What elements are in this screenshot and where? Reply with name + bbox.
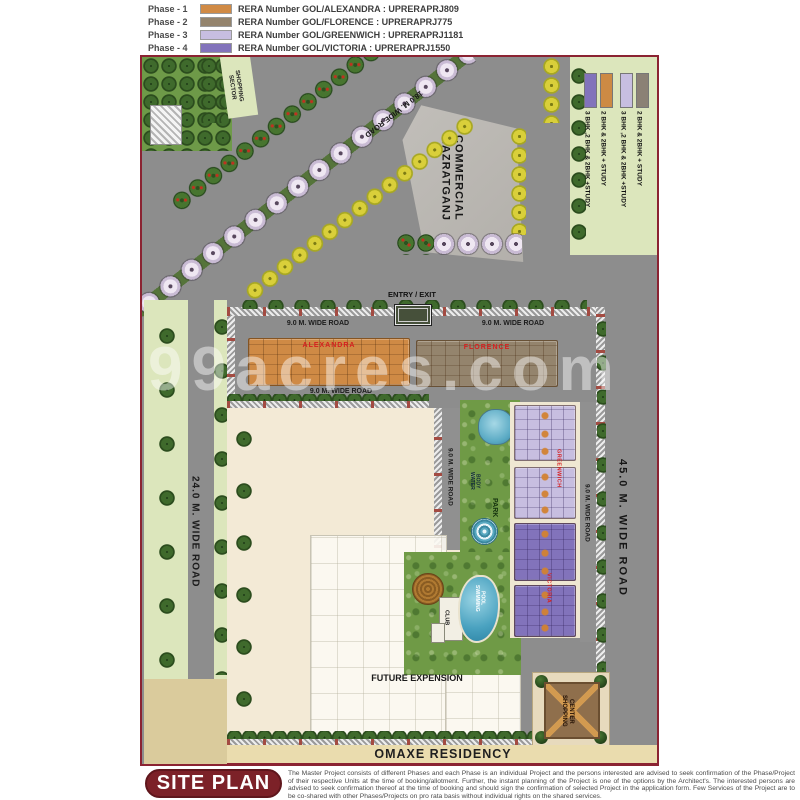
tree-row — [214, 305, 227, 675]
phase-color-swatch — [200, 4, 232, 14]
paved-plaza — [150, 105, 182, 145]
shopping-center-label: SHOPPING CENTER — [560, 687, 582, 735]
alexandra-label: ALEXANDRA — [249, 342, 409, 349]
project-name-strip: OMAXE RESIDENCY — [227, 745, 659, 766]
unit-legend-label: 2 BHK & 2BHK + STUDY — [635, 111, 647, 253]
project-name: OMAXE RESIDENCY — [227, 745, 659, 763]
site-plan-page: Phase - 1 RERA Number GOL/ALEXANDRA : UP… — [0, 0, 800, 800]
water-body-label: WATER BODY — [468, 471, 479, 491]
tree-row — [152, 309, 178, 675]
disclaimer-text: The Master Project consists of different… — [288, 770, 795, 800]
phase-color-swatch — [200, 17, 232, 27]
water-feature — [478, 409, 514, 445]
shopping-center-plot: SHOPPING CENTER — [532, 672, 610, 747]
road-9-label: 9.0 M. WIDE ROAD — [477, 320, 549, 330]
tree-row — [396, 233, 434, 255]
road-9-label: 9.0 M. WIDE ROAD — [446, 429, 458, 524]
road-9-label: 9.0 M. WIDE ROAD — [282, 320, 354, 330]
phase-legend-row: Phase - 4 RERA Number GOL/VICTORIA : UPR… — [148, 42, 463, 54]
boundary-wall — [434, 408, 442, 548]
site-plan-map: SECTOR SHOPPING 3 BHK ,2 BHK & 2BHK +STU… — [140, 55, 659, 766]
road-9-label: 9.0 M. WIDE ROAD — [583, 465, 595, 560]
boundary-wall — [227, 401, 429, 408]
future-expension-label: FUTURE EXPENSION — [342, 673, 492, 685]
unit-color-swatch — [600, 73, 613, 108]
unit-color-swatch — [584, 73, 597, 108]
victoria-label: VICTORIA — [545, 567, 556, 609]
tree-row — [510, 127, 526, 235]
phase-legend-row: Phase - 3 RERA Number GOL/GREENWICH : UP… — [148, 29, 463, 41]
florence-label: FLORENCE — [417, 344, 557, 351]
rera-number: RERA Number GOL/FLORENCE : UPRERAPRJ775 — [238, 17, 452, 27]
unit-legend-label: 3 BHK ,2 BHK & 2BHK +STUDY — [583, 111, 595, 253]
phase-legend-row: Phase - 1 RERA Number GOL/ALEXANDRA : UP… — [148, 3, 463, 15]
tree-row — [432, 233, 522, 255]
fountain — [471, 518, 498, 545]
building-greenwich — [514, 405, 576, 461]
building-florence: FLORENCE — [416, 340, 558, 387]
tree-row — [542, 57, 560, 123]
phase-color-swatch — [200, 43, 232, 53]
entry-gate — [394, 304, 432, 326]
site-plan-badge: SITE PLAN — [145, 769, 282, 798]
phase-label: Phase - 1 — [148, 4, 194, 14]
rera-number: RERA Number GOL/ALEXANDRA : UPRERAPRJ809 — [238, 4, 459, 14]
unit-legend-label: 3 BHK ,2 BHK & 2BHK +STUDY — [619, 111, 631, 253]
phase-label: Phase - 2 — [148, 17, 194, 27]
unit-legend-label: 2 BHK & 2BHK + STUDY — [599, 111, 611, 253]
road-45-label: 45.0 M. WIDE ROAD — [616, 450, 636, 605]
road-24-label: 24.0 M. WIDE ROAD — [189, 449, 213, 614]
entry-exit-label: ENTRY / EXIT — [367, 290, 457, 300]
sector-shopping-label: SECTOR SHOPPING — [224, 56, 256, 115]
shopping-center-building: SHOPPING CENTER — [544, 682, 600, 739]
phase-label: Phase - 4 — [148, 43, 194, 53]
unit-color-swatch — [620, 73, 633, 108]
greenwich-label: GREENWICH — [555, 445, 566, 491]
swimming-pool-label: SWIMMING POOL — [473, 583, 484, 613]
rera-number: RERA Number GOL/GREENWICH : UPRERAPRJ118… — [238, 30, 463, 40]
phase-color-swatch — [200, 30, 232, 40]
phase-legend: Phase - 1 RERA Number GOL/ALEXANDRA : UP… — [148, 3, 463, 55]
tree-row — [597, 312, 606, 672]
phase-legend-row: Phase - 2 RERA Number GOL/FLORENCE : UPR… — [148, 16, 463, 28]
tree-row — [230, 413, 254, 741]
building-alexandra: ALEXANDRA — [248, 338, 410, 386]
building-greenwich — [514, 467, 576, 519]
open-land — [144, 679, 227, 766]
phase-label: Phase - 3 — [148, 30, 194, 40]
unit-color-swatch — [636, 73, 649, 108]
club-label: CLUB — [443, 604, 453, 632]
rera-number: RERA Number GOL/VICTORIA : UPRERAPRJ1550 — [238, 43, 450, 53]
